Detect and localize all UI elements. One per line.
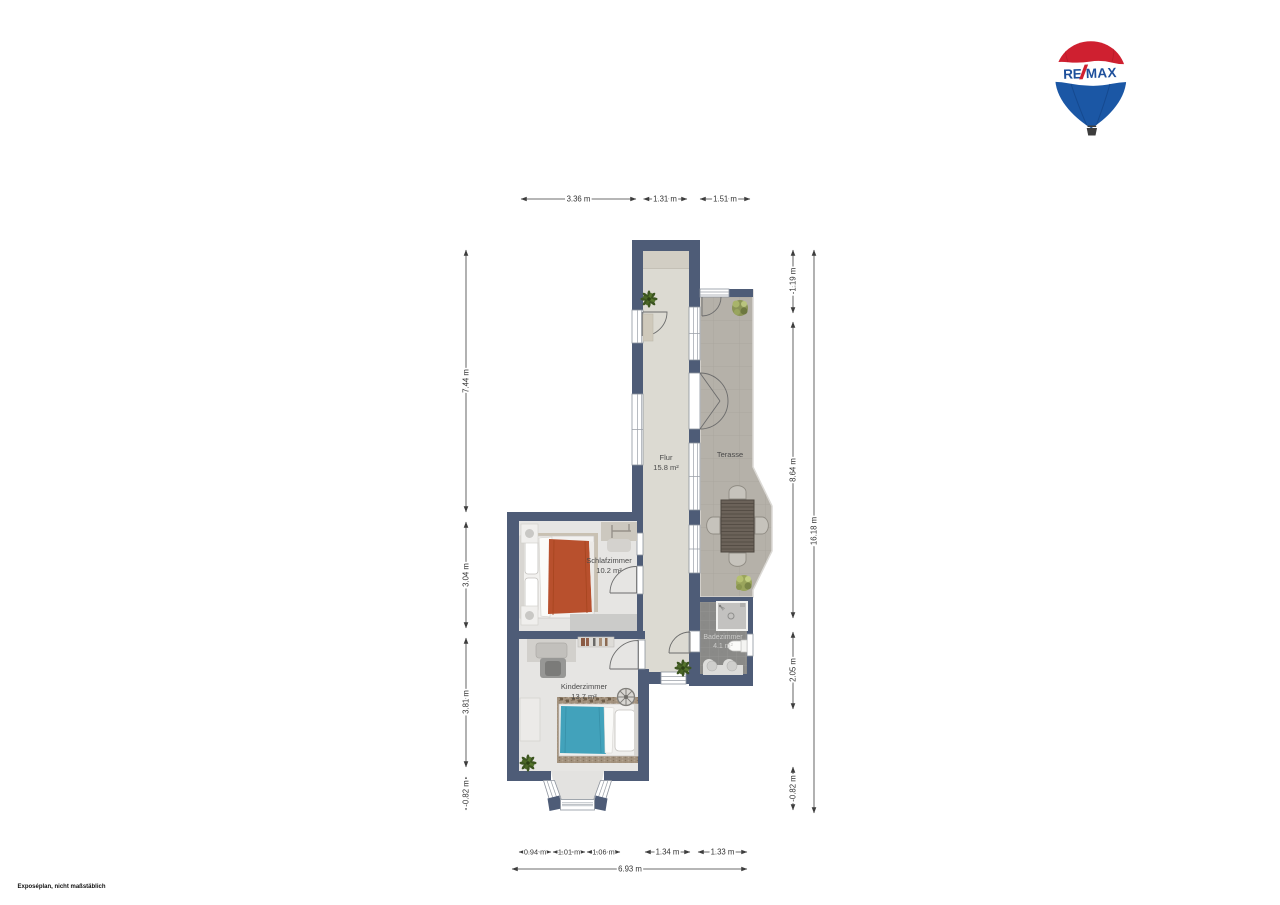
svg-text:1.33 m: 1.33 m [711,848,735,857]
svg-text:15.8 m²: 15.8 m² [653,463,679,472]
svg-text:6.93 m: 6.93 m [618,865,642,874]
svg-text:Schlafzimmer: Schlafzimmer [586,556,632,565]
svg-text:2.05 m: 2.05 m [789,658,798,682]
svg-text:13.7 m²: 13.7 m² [571,692,597,701]
svg-text:3.81 m: 3.81 m [462,690,471,714]
svg-text:8.64 m: 8.64 m [789,458,798,482]
svg-text:-0.82 m: -0.82 m [462,780,471,806]
svg-text:0.94 m: 0.94 m [524,848,546,857]
svg-text:-0.82 m: -0.82 m [789,775,798,801]
svg-text:16.18 m: 16.18 m [810,517,819,545]
svg-text:4.1 m²: 4.1 m² [713,643,734,650]
svg-text:Terasse: Terasse [717,450,743,459]
svg-text:Kinderzimmer: Kinderzimmer [561,682,608,691]
svg-text:MAX: MAX [1086,65,1117,81]
svg-text:10.2 m²: 10.2 m² [596,566,622,575]
svg-text:Flur: Flur [660,453,673,462]
svg-text:Badezimmer: Badezimmer [703,634,743,641]
svg-text:1.51 m: 1.51 m [713,195,737,204]
svg-text:1.34 m: 1.34 m [656,848,680,857]
svg-text:1.31 m: 1.31 m [653,195,677,204]
svg-text:RE: RE [1063,66,1082,82]
svg-text:1.06 m: 1.06 m [592,848,614,857]
svg-text:Exposéplan, nicht maßstäblich: Exposéplan, nicht maßstäblich [18,884,106,890]
svg-text:1.01 m: 1.01 m [558,848,580,857]
svg-text:7.44 m: 7.44 m [462,369,471,393]
svg-text:3.36 m: 3.36 m [567,195,591,204]
svg-text:-1.19 m: -1.19 m [789,268,798,294]
svg-text:3.04 m: 3.04 m [462,563,471,587]
